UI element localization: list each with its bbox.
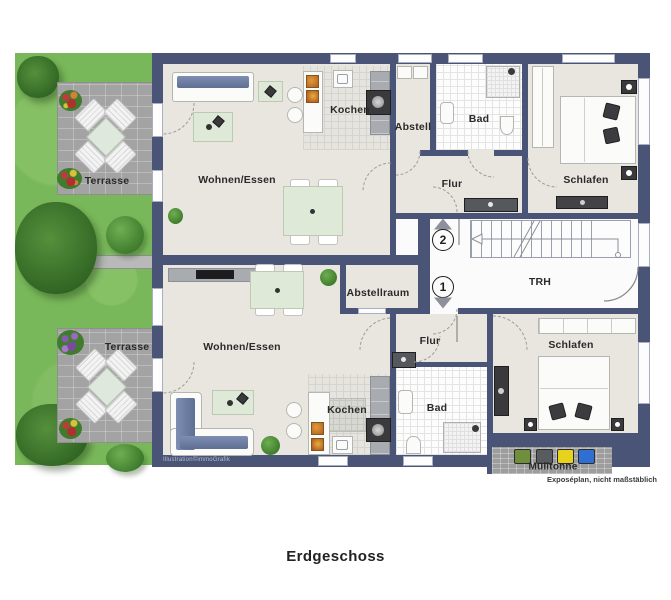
wardrobe	[532, 66, 554, 148]
sideboard-decor	[488, 202, 493, 207]
wall	[340, 265, 346, 314]
illustration-credit: Illustration©immoGrafik	[163, 457, 230, 463]
level-marker-1: 1	[432, 276, 454, 298]
room-label-hall-upper: Flur	[442, 178, 463, 190]
wall	[487, 433, 638, 447]
room-label-bath-upper: Bad	[469, 113, 489, 125]
door	[358, 308, 386, 314]
room-label-stairwell: TRH	[529, 276, 551, 288]
flower-bed	[57, 168, 82, 189]
bed	[538, 356, 610, 430]
wall	[494, 150, 522, 156]
nightstand-lamp	[626, 84, 632, 90]
arrow-down-icon	[434, 298, 452, 309]
room-label-living-lower: Wohnen/Essen	[203, 341, 280, 353]
shower-drain	[508, 68, 515, 75]
rug	[212, 390, 254, 415]
bed-duvet-fold	[540, 388, 608, 389]
room-label-bath-lower: Bad	[427, 402, 447, 414]
sideboard-decor	[401, 357, 406, 362]
waste-bin-blue	[578, 449, 595, 464]
flower-bed	[57, 330, 84, 355]
food-decor	[306, 75, 319, 88]
bed	[560, 96, 636, 164]
window	[403, 456, 433, 466]
tree	[15, 202, 97, 294]
window	[562, 54, 615, 63]
wall	[390, 314, 396, 319]
tree	[17, 56, 59, 98]
bush	[106, 216, 144, 254]
room-label-storage-upper: Abstell	[395, 121, 431, 133]
nightstand-lamp	[528, 422, 533, 427]
toilet	[500, 116, 514, 135]
terrace-door-lower	[152, 358, 163, 392]
room-label-living-upper: Wohnen/Essen	[198, 174, 275, 186]
side-table	[286, 423, 302, 439]
room-label-bedroom-lower: Schlafen	[548, 339, 593, 351]
terrace-door-upper	[152, 103, 163, 137]
wall	[522, 186, 528, 213]
wall	[420, 150, 468, 156]
window	[448, 54, 483, 63]
sink-basin	[337, 74, 348, 84]
level-marker-2: 2	[432, 229, 454, 251]
tv	[196, 270, 234, 279]
side-table	[286, 402, 302, 418]
window	[152, 170, 163, 202]
wall	[430, 64, 436, 150]
shelf	[413, 66, 428, 79]
wall	[487, 314, 493, 318]
wardrobe-knob	[498, 388, 504, 394]
room-label-kitchen-upper: Kochen	[330, 104, 370, 116]
room-label-storage-lower: Abstellraum	[347, 287, 410, 299]
wall	[458, 308, 638, 314]
indoor-plant	[320, 269, 337, 286]
bed-duvet-fold	[584, 98, 585, 162]
pillow	[603, 127, 621, 145]
room-label-hall-lower: Flur	[420, 335, 441, 347]
lamp	[206, 124, 212, 130]
food-decor	[311, 438, 324, 451]
room-label-bedroom-upper: Schlafen	[563, 174, 608, 186]
entrance-door	[638, 223, 650, 267]
sink-basin	[336, 440, 348, 450]
bathroom-sink	[398, 390, 413, 414]
shower-drain	[472, 425, 479, 432]
side-table	[287, 107, 303, 123]
room-label-kitchen-lower: Kochen	[327, 404, 367, 416]
flower-bed	[59, 90, 82, 111]
dresser-knob	[580, 200, 585, 205]
floor-plan: 2 1 Terrasse Terrasse Wohnen/Essen Koche…	[0, 0, 671, 600]
toilet	[406, 436, 421, 454]
level-marker-1-value: 1	[440, 280, 447, 294]
side-table	[287, 87, 303, 103]
kitchen-counter	[370, 376, 390, 455]
wall	[522, 64, 528, 158]
level-marker-2-value: 2	[440, 233, 447, 247]
wall	[458, 213, 638, 219]
shelf	[397, 66, 412, 79]
window	[398, 54, 432, 63]
window	[330, 54, 356, 63]
sofa-cushion	[180, 436, 248, 449]
wall	[340, 308, 358, 314]
closet	[538, 318, 636, 334]
food-decor	[311, 422, 324, 435]
wall	[418, 219, 430, 308]
page-title: Erdgeschoss	[286, 548, 385, 565]
window	[152, 288, 163, 326]
stair-steps	[471, 221, 600, 257]
nightstand-lamp	[615, 422, 620, 427]
wall	[612, 447, 638, 467]
wall	[440, 362, 487, 367]
rug	[193, 112, 233, 142]
stove-front	[372, 96, 384, 108]
wall	[487, 342, 493, 433]
bush	[106, 444, 144, 472]
wardrobe-divider	[542, 68, 543, 146]
nightstand-lamp	[626, 170, 632, 176]
window	[638, 78, 650, 145]
lamp	[227, 400, 233, 406]
wall	[390, 192, 396, 213]
stove-front	[372, 424, 384, 436]
indoor-plant	[261, 436, 280, 455]
sofa-cushion	[177, 76, 249, 88]
indoor-plant	[168, 208, 183, 224]
bathroom-sink	[440, 102, 454, 124]
arrow-up-icon	[434, 219, 452, 230]
room-label-terrace-lower: Terrasse	[105, 341, 150, 353]
table-decor	[310, 209, 315, 214]
window	[318, 456, 348, 466]
flower-bed	[59, 418, 82, 439]
window	[638, 342, 650, 404]
food-decor	[306, 90, 319, 103]
room-label-terrace-upper: Terrasse	[85, 175, 130, 187]
table-decor	[275, 288, 280, 293]
label-bins: Mülltonne	[528, 462, 577, 473]
plan-disclaimer: Exposéplan, nicht maßstäblich	[547, 475, 657, 484]
